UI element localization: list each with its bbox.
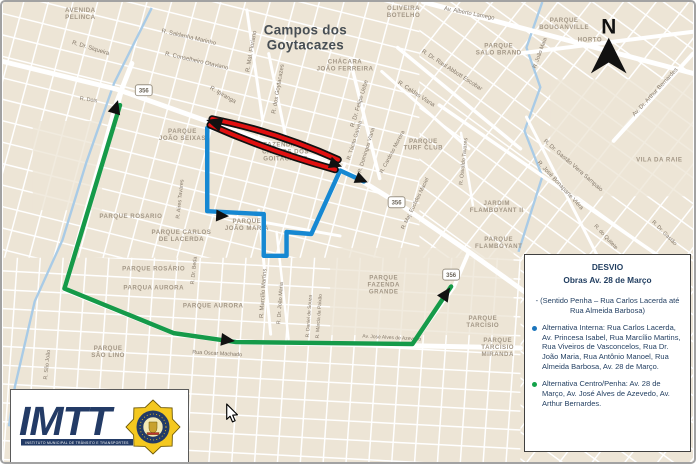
svg-text:356: 356 xyxy=(139,89,150,95)
city-label: Campos dosGoytacazes xyxy=(264,23,347,53)
district-label: PARQUETURF CLUB xyxy=(404,138,444,152)
svg-text:N: N xyxy=(601,16,616,39)
district-label: PARQUESÃO LINO xyxy=(91,345,125,359)
legend-alternative-centro-penha-text: Alternativa Centro/Penha: Av. 28 de Març… xyxy=(542,379,683,409)
district-label: OLIVEIRABOTELHO xyxy=(387,5,420,19)
legend-alternative-centro-penha: Alternativa Centro/Penha: Av. 28 de Març… xyxy=(532,379,683,409)
imtt-wordmark: IMTT xyxy=(19,398,115,444)
legend-title: DESVIO xyxy=(531,262,684,273)
sparse-area xyxy=(550,79,693,196)
imtt-badge-icon xyxy=(126,400,180,454)
screenshot-frame: AVENIDAPELINCAOLIVEIRABOTELHOCHÁCARAJOÃO… xyxy=(0,0,696,464)
legend-alternative-interna-text: Alternativa Interna: Rua Carlos Lacerda,… xyxy=(542,323,683,372)
legend-subtitle: Obras Av. 28 de Março xyxy=(531,275,684,286)
legend-panel: DESVIO Obras Av. 28 de Março - (Sentido … xyxy=(524,254,691,452)
district-label: VILA DA RAIE xyxy=(636,157,682,164)
road-shield-356: 356 xyxy=(388,197,405,208)
district-label: HORTO xyxy=(578,37,602,44)
district-label: AVENIDAPELINCA xyxy=(65,7,96,21)
district-label: PARQUETARCISIOMIRANDA xyxy=(481,337,514,358)
mouse-cursor xyxy=(225,403,240,424)
blue-route-bullet-icon xyxy=(532,326,537,331)
district-label: PARQUE ROSARIO xyxy=(99,213,162,220)
district-label: PARQUETARCISIO xyxy=(466,315,499,329)
district-label: PARQUE CARLOSDE LACERDA xyxy=(152,229,212,243)
district-label: PARQUEFAZENDAGRANDE xyxy=(367,275,399,296)
legend-scope: - (Sentido Penha – Rua Carlos Lacerda at… xyxy=(534,296,681,316)
district-label: PARQUE ROSÁRIO xyxy=(122,266,185,273)
district-label: PARQUA AURORA xyxy=(123,285,184,292)
legend-alternative-interna: Alternativa Interna: Rua Carlos Lacerda,… xyxy=(532,323,683,372)
green-route-bullet-icon xyxy=(532,382,537,387)
road-shield-356: 356 xyxy=(135,85,152,96)
road-shield-356: 356 xyxy=(443,269,460,280)
imtt-tagline: INSTITUTO MUNICIPAL DE TRÂNSITO E TRANSP… xyxy=(25,441,129,445)
district-label: PARQUE AURORA xyxy=(183,302,244,309)
svg-text:356: 356 xyxy=(446,273,457,279)
imtt-logo: IMTT INSTITUTO MUNICIPAL DE TRÂNSITO E T… xyxy=(10,389,189,463)
svg-text:356: 356 xyxy=(392,201,403,207)
